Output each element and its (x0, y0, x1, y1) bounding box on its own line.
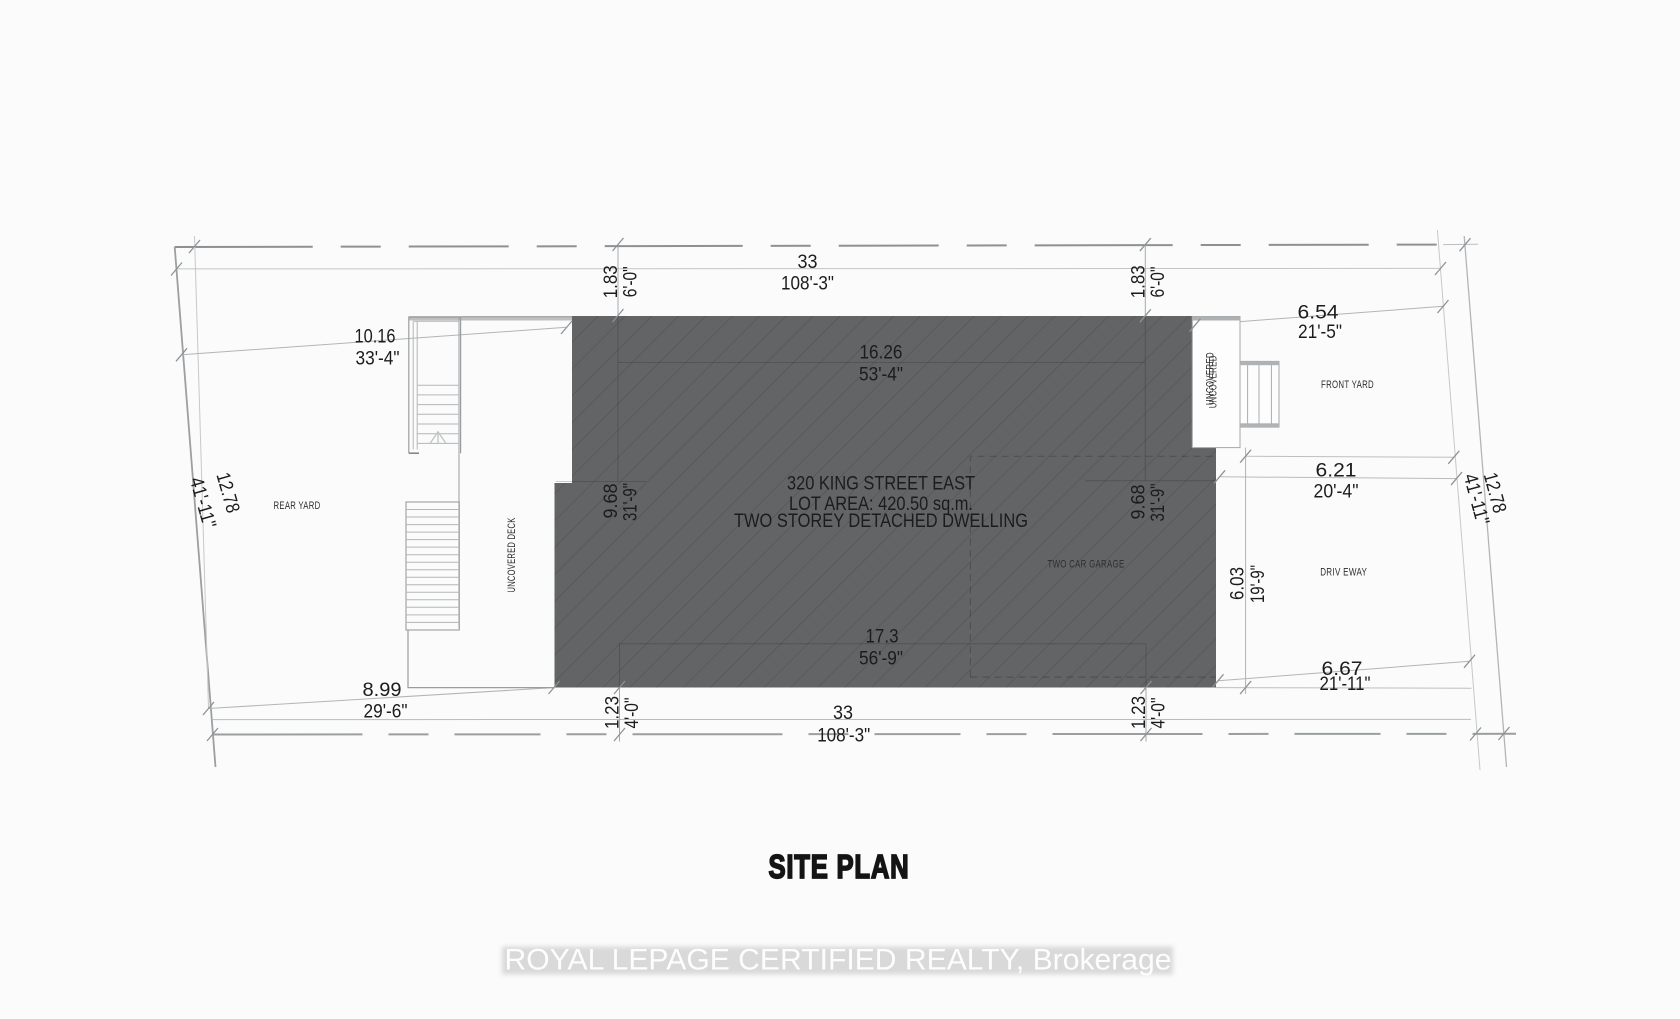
svg-text:33: 33 (833, 702, 853, 724)
svg-text:DRIV EWAY: DRIV EWAY (1320, 566, 1367, 578)
svg-text:TWO CAR GARAGE: TWO CAR GARAGE (1048, 559, 1125, 571)
svg-text:REAR YARD: REAR YARD (274, 500, 321, 512)
svg-text:53'-4": 53'-4" (859, 363, 903, 385)
svg-text:10.16: 10.16 (355, 326, 396, 348)
svg-text:TWO STOREY DETACHED DWELLING: TWO STOREY DETACHED DWELLING (734, 510, 1028, 532)
svg-text:6.03: 6.03 (1227, 567, 1249, 600)
svg-text:UNCOVERED: UNCOVERED (1207, 355, 1219, 408)
svg-text:29'-6": 29'-6" (364, 700, 408, 722)
svg-text:31'-9": 31'-9" (1147, 483, 1169, 521)
svg-text:UNCOVERED DECK: UNCOVERED DECK (506, 517, 518, 592)
svg-text:19'-9": 19'-9" (1247, 565, 1269, 603)
svg-text:16.26: 16.26 (860, 342, 903, 364)
svg-text:21'-5": 21'-5" (1298, 321, 1342, 343)
svg-text:FRONT YARD: FRONT YARD (1321, 379, 1374, 391)
svg-text:6'-0": 6'-0" (620, 266, 642, 297)
svg-text:ROYAL LEPAGE CERTIFIED REALTY,: ROYAL LEPAGE CERTIFIED REALTY, Brokerage (505, 944, 1172, 977)
svg-text:SITE PLAN: SITE PLAN (769, 848, 910, 885)
svg-text:8.99: 8.99 (363, 679, 402, 701)
svg-text:20'-4": 20'-4" (1314, 480, 1359, 502)
svg-text:56'-9": 56'-9" (859, 647, 903, 669)
svg-text:17.3: 17.3 (866, 626, 899, 648)
svg-text:108'-3": 108'-3" (781, 272, 834, 294)
svg-text:6.21: 6.21 (1316, 459, 1357, 481)
svg-text:320 KING STREET EAST: 320 KING STREET EAST (787, 473, 975, 495)
svg-text:33'-4": 33'-4" (356, 347, 400, 369)
svg-text:4'-0": 4'-0" (621, 697, 643, 728)
svg-text:31'-9": 31'-9" (620, 483, 642, 521)
svg-text:108'-3": 108'-3" (817, 724, 870, 746)
svg-text:33: 33 (798, 251, 818, 273)
svg-text:21'-11": 21'-11" (1320, 673, 1371, 695)
svg-text:4'-0": 4'-0" (1148, 697, 1170, 728)
svg-text:6'-0": 6'-0" (1147, 266, 1169, 297)
